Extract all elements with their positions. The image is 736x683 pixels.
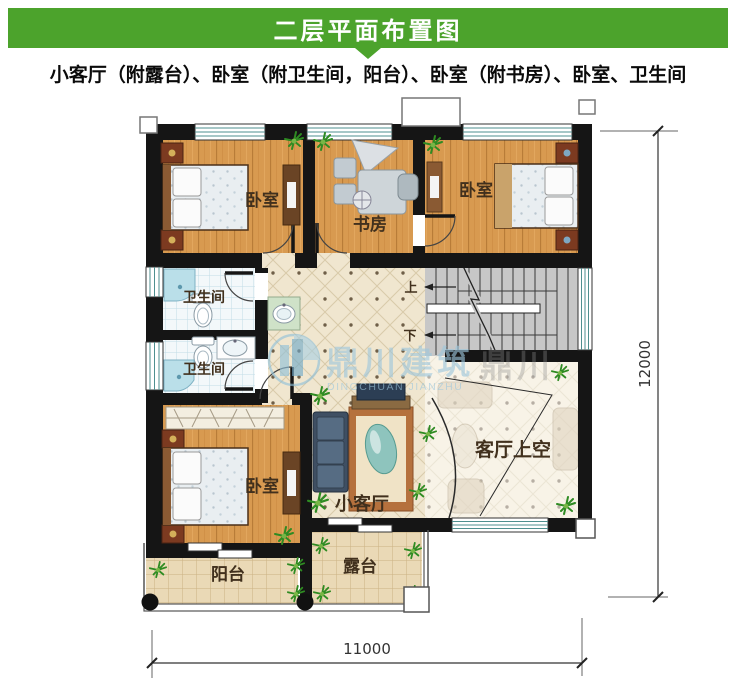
watermark-partial: 鼎川 xyxy=(480,349,554,385)
dim-width: 11000 xyxy=(343,640,391,658)
window-top-bedroom-tl xyxy=(195,124,265,140)
office-chair xyxy=(398,174,418,200)
toilet-tank xyxy=(192,337,214,345)
page: 二层平面布置图 小客厅（附露台）、卧室（附卫生间，阳台）、卧室（附书房）、卧室、… xyxy=(0,0,736,683)
label-balcony: 阳台 xyxy=(211,564,245,584)
corner-pier xyxy=(579,100,595,114)
wardrobe xyxy=(166,407,284,429)
dim-height: 12000 xyxy=(636,340,654,388)
dimension-right: 12000 xyxy=(600,126,678,602)
sofa xyxy=(313,412,348,492)
dimension-bottom: 11000 xyxy=(147,618,587,678)
window-right-stairs xyxy=(578,268,592,350)
label-study: 书房 xyxy=(353,214,387,234)
bed xyxy=(495,164,578,228)
label-living-void: 客厅上空 xyxy=(475,438,551,461)
label-bedroom-bl: 卧室 xyxy=(245,476,279,496)
label-stairs-up: 上 xyxy=(404,280,417,295)
column-round xyxy=(297,594,314,611)
label-stairs-down: 下 xyxy=(403,328,416,343)
corner-pier xyxy=(140,117,157,133)
watermark-name: 鼎川建筑 xyxy=(326,345,474,382)
window-south-void xyxy=(452,518,548,532)
label-bath1: 卫生间 xyxy=(183,289,225,306)
roof-bumpout xyxy=(402,98,460,126)
window-left-bath1 xyxy=(146,267,163,297)
column-square xyxy=(404,587,429,612)
hall-vanity xyxy=(268,297,300,330)
bed xyxy=(163,448,248,525)
label-bedroom-tr: 卧室 xyxy=(459,180,493,200)
window-left-bath2 xyxy=(146,342,163,390)
column-round xyxy=(142,594,159,611)
toilet xyxy=(194,303,212,327)
bed xyxy=(163,165,248,230)
window-top-study xyxy=(307,124,392,140)
floor-plan: 卧室 书房 卧室 卫生间 卫生间 卧室 小客厅 客厅上空 阳台 露台 上 下 鼎… xyxy=(0,0,736,683)
chair xyxy=(334,158,356,178)
watermark-sub: DINGCHUAN JIANZHU xyxy=(327,381,463,393)
window-top-bedroom-tr xyxy=(463,124,572,140)
column-square xyxy=(576,519,595,538)
label-small-living: 小客厅 xyxy=(335,493,389,514)
label-terrace: 露台 xyxy=(343,556,377,576)
label-bath2: 卫生间 xyxy=(183,361,225,378)
label-bedroom-tl: 卧室 xyxy=(245,190,279,210)
